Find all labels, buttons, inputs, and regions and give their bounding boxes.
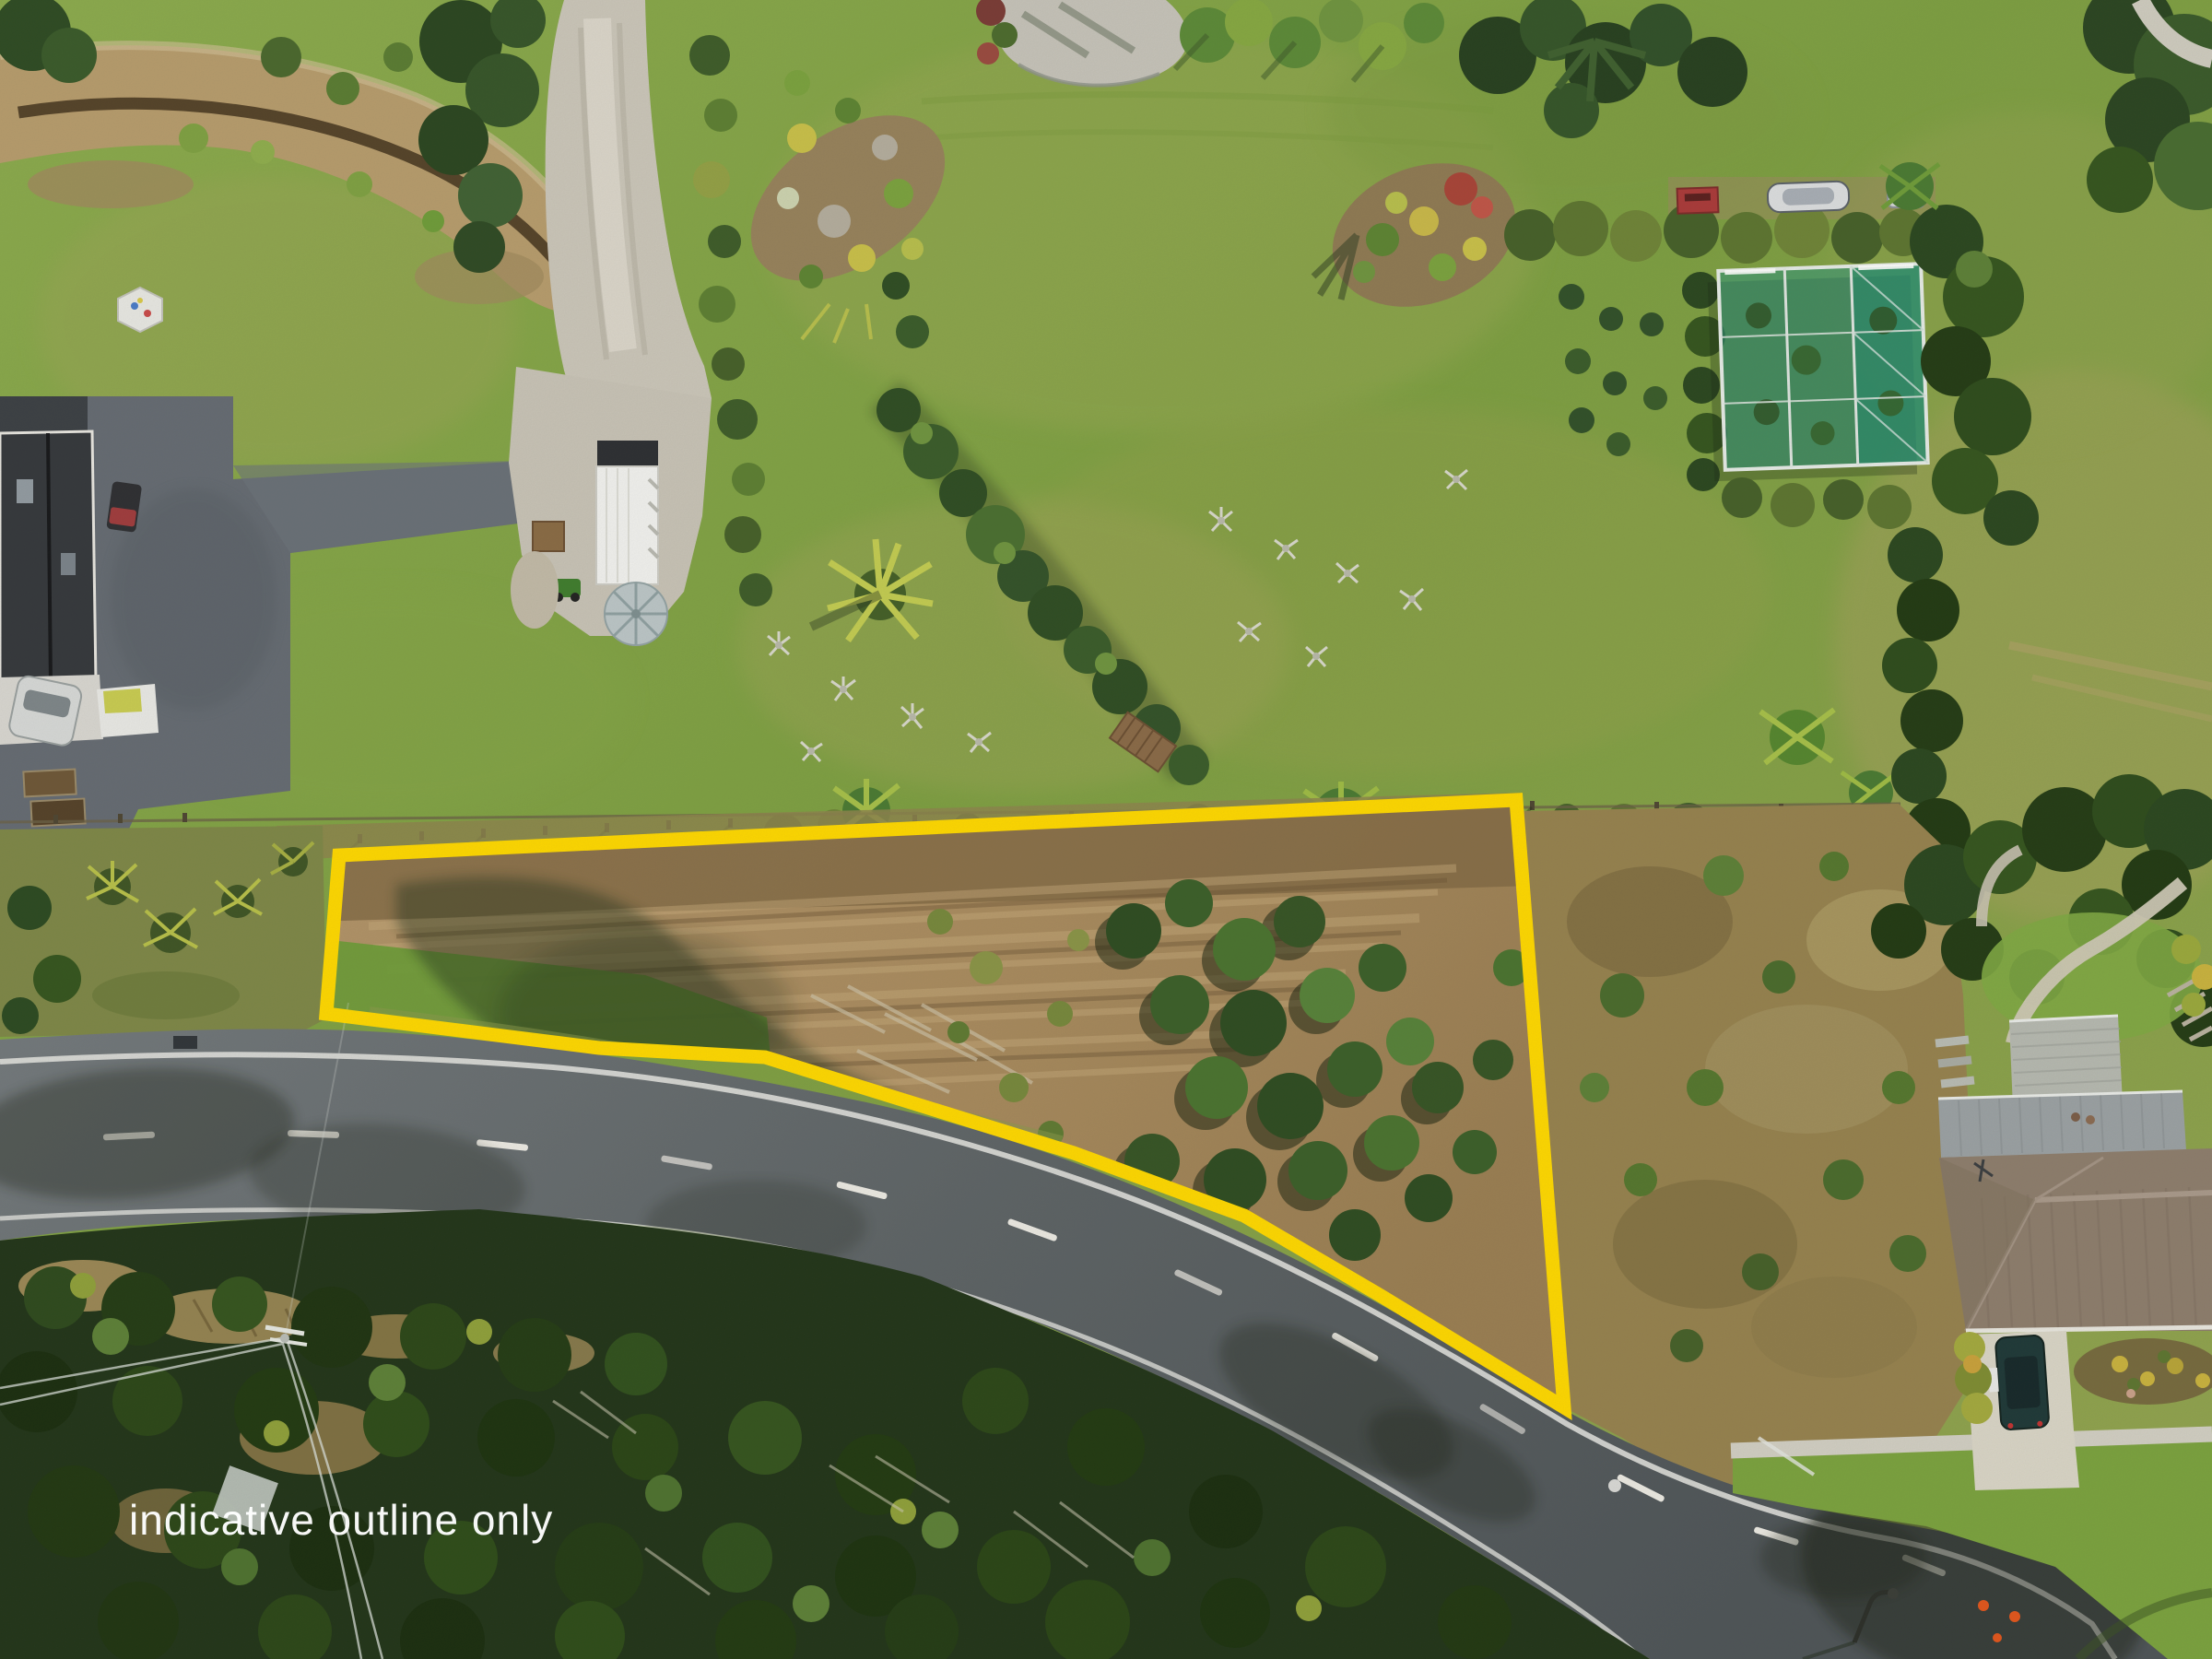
watermark-text: indicative outline only [129, 1496, 553, 1544]
photo-grain [0, 0, 2212, 1659]
aerial-photo-canvas: indicative outline only [0, 0, 2212, 1659]
aerial-photo: indicative outline only [0, 0, 2212, 1659]
